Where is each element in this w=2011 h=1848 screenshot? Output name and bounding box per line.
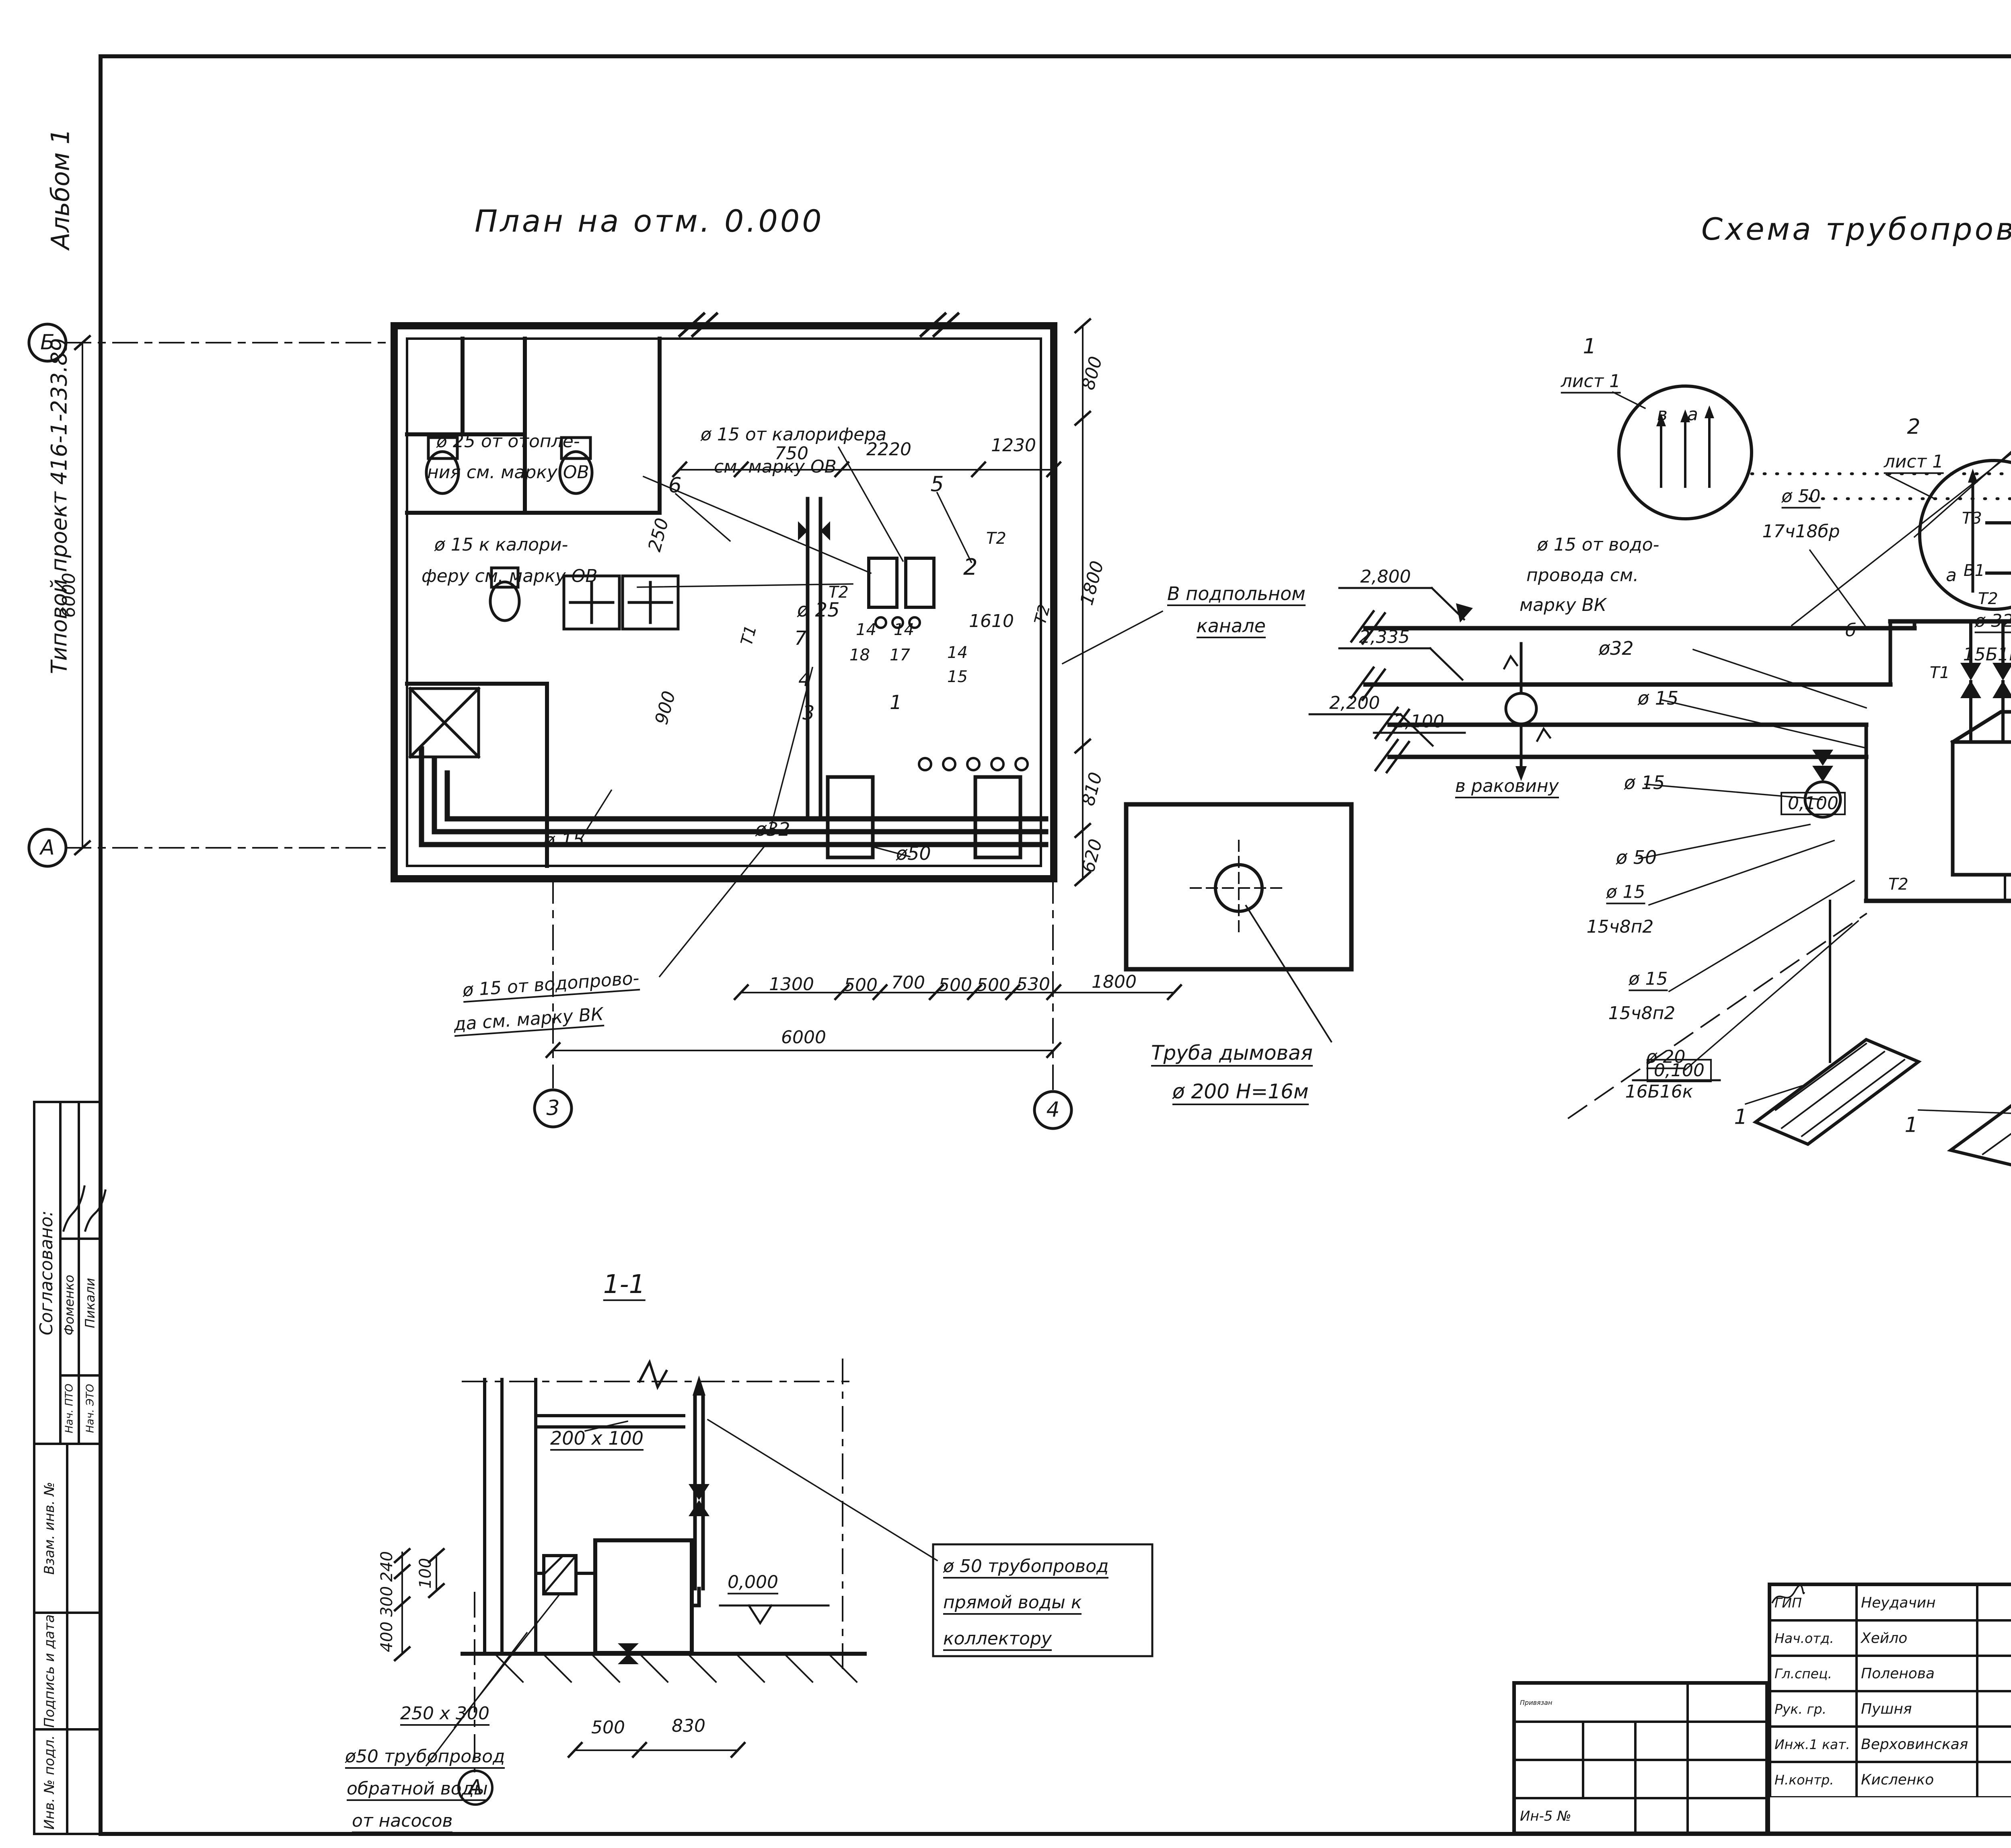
staff-name: Хейло [1857, 1620, 1977, 1656]
plan-label: 1300 [769, 975, 814, 994]
section-label: 240 [378, 1551, 395, 1582]
plan-label: 530 [1016, 975, 1050, 994]
plan-label: феру см. марку ОВ [422, 567, 598, 586]
scheme-label: 0,100 [1781, 792, 1846, 815]
section-label: 100 [417, 1558, 434, 1589]
plan-label: 14 [856, 621, 876, 638]
scheme-label: ø 15 от водо- [1537, 536, 1659, 554]
section-label: прямой воды к [943, 1593, 1082, 1615]
scheme-label: Т2 [1888, 876, 1908, 893]
plan-label: ø 15 к калори- [434, 536, 568, 554]
section-label: ø50 трубопровод [345, 1747, 505, 1769]
plan-label: 1 [890, 693, 902, 713]
staff-role: Инж.1 кат. [1770, 1727, 1857, 1762]
margin-label: Фоменко [63, 1275, 76, 1336]
scheme-diagonal [1569, 621, 2011, 1118]
scheme-label: 15Б1нж [1963, 645, 2011, 664]
scheme-pipes [1351, 611, 2011, 901]
axis-marker-label: 4 [1046, 1099, 1059, 1121]
scheme-label: ø 15 [1624, 773, 1665, 792]
margin-label: Нач. ПТО [64, 1383, 75, 1433]
section-label: 200 х 100 [550, 1429, 644, 1451]
scheme-label: провода см. [1526, 566, 1639, 585]
signature-scribble [1977, 1727, 2011, 1762]
margin-label: Типовой проект 416-1-233.89 [48, 338, 71, 674]
plan-label: 6000 [781, 1028, 826, 1047]
plan-label: 2220 [866, 440, 911, 459]
margin-label: Нач. ЭТО [85, 1384, 96, 1433]
plan-title: План на отм. 0.000 [475, 203, 824, 239]
section-label: ø 50 трубопровод [943, 1557, 1108, 1579]
margin-label: Альбом 1 [47, 129, 73, 250]
scheme-label: Т1 [1930, 664, 1950, 681]
signature-scribble [1977, 1585, 2011, 1620]
scheme-label: 16Б16к [1625, 1083, 1693, 1101]
section-label: 500 [591, 1718, 625, 1737]
plan-label: канале [1197, 616, 1266, 638]
section-label: 400 [378, 1622, 395, 1652]
section-label: обратной воды [347, 1780, 488, 1801]
plan-label: Труба дымовая [1151, 1042, 1313, 1067]
staff-name: Верховинская [1857, 1727, 1977, 1762]
plan-label: 700 [891, 974, 925, 992]
scheme-label: 15ч8п2 [1587, 918, 1654, 936]
plan-label: 14 [894, 621, 914, 638]
plan-label: 15 [947, 668, 968, 685]
staff-name: Поленова [1857, 1656, 1977, 1691]
signature-scribble [1977, 1656, 2011, 1691]
plan-label: 4 [798, 670, 811, 690]
scheme-leaders [1613, 364, 2011, 1114]
scheme-label: 15ч8п2 [1608, 1004, 1676, 1023]
section-label: 830 [672, 1717, 705, 1735]
scheme-hatched-units [1756, 901, 2011, 1176]
margin-label: Взам. инв. № [43, 1482, 57, 1575]
plan-label: 1230 [991, 436, 1036, 455]
scheme-label: ø 50 [1616, 848, 1657, 867]
signature-scribble [1977, 1620, 2011, 1656]
scheme-label: в [1657, 405, 1668, 424]
staff-role: Нач.отд. [1770, 1620, 1857, 1656]
axis-marker-label: 3 [546, 1098, 559, 1120]
titleblock-staff-table: ГИПНеудачин12.89Нач.отд.Хейло12.89Гл.спе… [1768, 1583, 2011, 1834]
scheme-boxes [1953, 712, 2011, 901]
attached-cell [1583, 1760, 1635, 1798]
scheme-label: в раковину [1455, 777, 1559, 798]
plan-label: 500 [844, 976, 878, 995]
scheme-label: ø 15 [1638, 689, 1678, 708]
margin-label: Инв. № подл. [43, 1735, 57, 1830]
plan-label: ø50 [896, 844, 931, 863]
plan-label: 1610 [969, 612, 1014, 631]
attached-label: Привязан [1515, 1684, 1688, 1722]
margin-label: Пикали [84, 1278, 97, 1328]
scheme-label: 17ч18бр [1762, 522, 1840, 541]
attached-cell [1515, 1722, 1583, 1760]
margin-label: Подпись и дата [43, 1614, 57, 1728]
scheme-label: марку ВК [1520, 596, 1606, 615]
plan-label: ø 25 [797, 600, 840, 620]
scheme-label: 2,100 [1394, 712, 1444, 734]
attached-cell [1635, 1760, 1688, 1798]
staff-name: Пушня [1857, 1691, 1977, 1727]
plan-label: ø 15 от калорифера [701, 426, 886, 444]
plan-label: 1800 [1092, 973, 1137, 991]
attached-cell [1688, 1684, 1768, 1722]
scheme-label: ø 32 [1975, 612, 2011, 633]
scheme-label: ø32 [1599, 639, 1634, 658]
attached-cell [1635, 1722, 1688, 1760]
section-label: 300 [378, 1586, 395, 1617]
staff-role: Н.контр. [1770, 1762, 1857, 1797]
section-label: 0,000 [728, 1573, 778, 1594]
plan-label: Т2 [829, 584, 849, 601]
scheme-label: В1 [1964, 562, 1985, 579]
section-label: 250 х 300 [400, 1704, 489, 1726]
scheme-label: 2,335 [1359, 628, 1410, 649]
plan-label: 500 [938, 976, 972, 995]
scheme-label: 1 [1583, 336, 1596, 358]
scheme-label: ø 15 [1606, 883, 1645, 904]
attached-cell [1515, 1760, 1583, 1798]
plan-chimney [1126, 804, 1351, 1042]
attached-cell [1688, 1798, 1768, 1834]
staff-role: Рук. гр. [1770, 1691, 1857, 1727]
axis-marker-label: Б [40, 332, 55, 354]
plan-label: В подпольном [1167, 584, 1306, 606]
scheme-label: ø 15 [1629, 970, 1668, 991]
plan-label: 500 [977, 976, 1010, 995]
scheme-label: а [1687, 405, 1698, 424]
inv-label: Ин-5 № [1515, 1798, 1635, 1834]
section-label: 1-1 [603, 1271, 646, 1301]
attached-cell [1688, 1760, 1768, 1798]
plan-label: 18 [849, 647, 870, 664]
scheme-label: ø 50 [1782, 487, 1821, 508]
plan-label: Т2 [986, 530, 1006, 547]
scheme-label: 1 [1734, 1106, 1747, 1129]
staff-role: Гл.спец. [1770, 1656, 1857, 1691]
plan-label: ø32 [755, 820, 790, 839]
scheme-label: лист 1 [1561, 372, 1621, 393]
scheme-label: 2,200 [1329, 694, 1380, 715]
section-label: А [468, 1777, 483, 1799]
attached-cell [1583, 1722, 1635, 1760]
plan-label: 6000 [60, 573, 78, 618]
plan-label: 3 [802, 703, 815, 723]
plan-fixtures [410, 438, 678, 757]
signature-scribble [1977, 1691, 2011, 1727]
plan-label: 7 [794, 628, 807, 648]
attached-table: Привязан Ин-5 № [1512, 1681, 1768, 1834]
drawing-sheet: 29 План на отм. 0.000 Схема трубопроводо… [0, 0, 2011, 1848]
plan-label: ø 25 от отопле- [436, 432, 580, 451]
scheme-label: 2,800 [1360, 567, 1411, 589]
axis-marker-label: А [40, 837, 55, 859]
attached-cell [1688, 1722, 1768, 1760]
scheme-label: 0,100 [1647, 1059, 1712, 1082]
plan-label: 6 [668, 475, 681, 497]
scheme-title: Схема трубопроводов [1701, 211, 2011, 247]
plan-label: 2 [963, 556, 978, 580]
staff-name: Неудачин [1857, 1585, 1977, 1620]
scheme-label: 1 [1904, 1114, 1918, 1137]
plan-label: ø 15 [544, 830, 584, 850]
section-label: от насосов [352, 1812, 452, 1833]
scheme-label: Т3 [1962, 510, 1982, 527]
scheme-label: лист 1 [1884, 452, 1944, 474]
plan-walls [394, 314, 1054, 879]
attached-cell [1635, 1798, 1688, 1834]
scheme-label: Т2 [1978, 590, 1998, 607]
scheme-label: б [1845, 621, 1856, 640]
plan-label: 5 [930, 474, 944, 496]
staff-name: Кисленко [1857, 1762, 1977, 1797]
plan-label: 750 [775, 444, 808, 463]
scheme-label: 2 [1907, 416, 1920, 438]
signature-scribble [1977, 1762, 2011, 1797]
margin-label: Согласовано: [37, 1211, 56, 1335]
plan-label: 14 [947, 644, 968, 661]
plan-label: ния см. марку ОВ [427, 463, 589, 482]
plan-label: ø 200 Н=16м [1172, 1081, 1309, 1105]
section-label: коллектору [943, 1630, 1052, 1651]
scheme-label: а [1946, 566, 1957, 585]
plan-label: 17 [890, 647, 910, 664]
